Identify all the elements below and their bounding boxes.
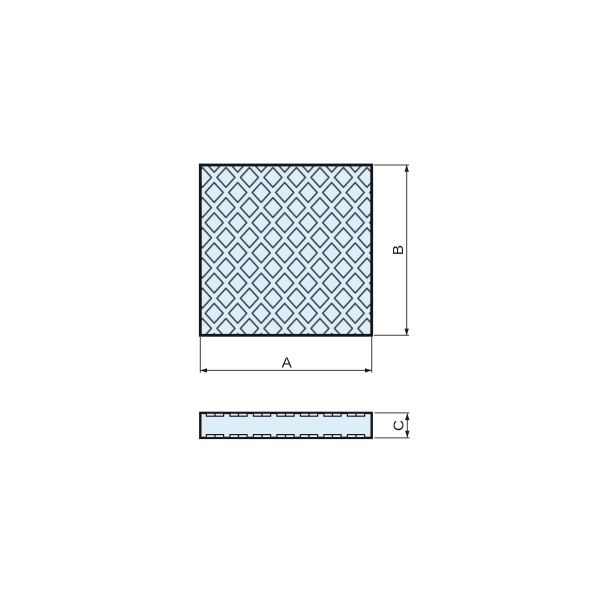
svg-text:C: C	[390, 420, 407, 431]
svg-text:A: A	[282, 354, 293, 371]
svg-text:B: B	[390, 245, 407, 255]
